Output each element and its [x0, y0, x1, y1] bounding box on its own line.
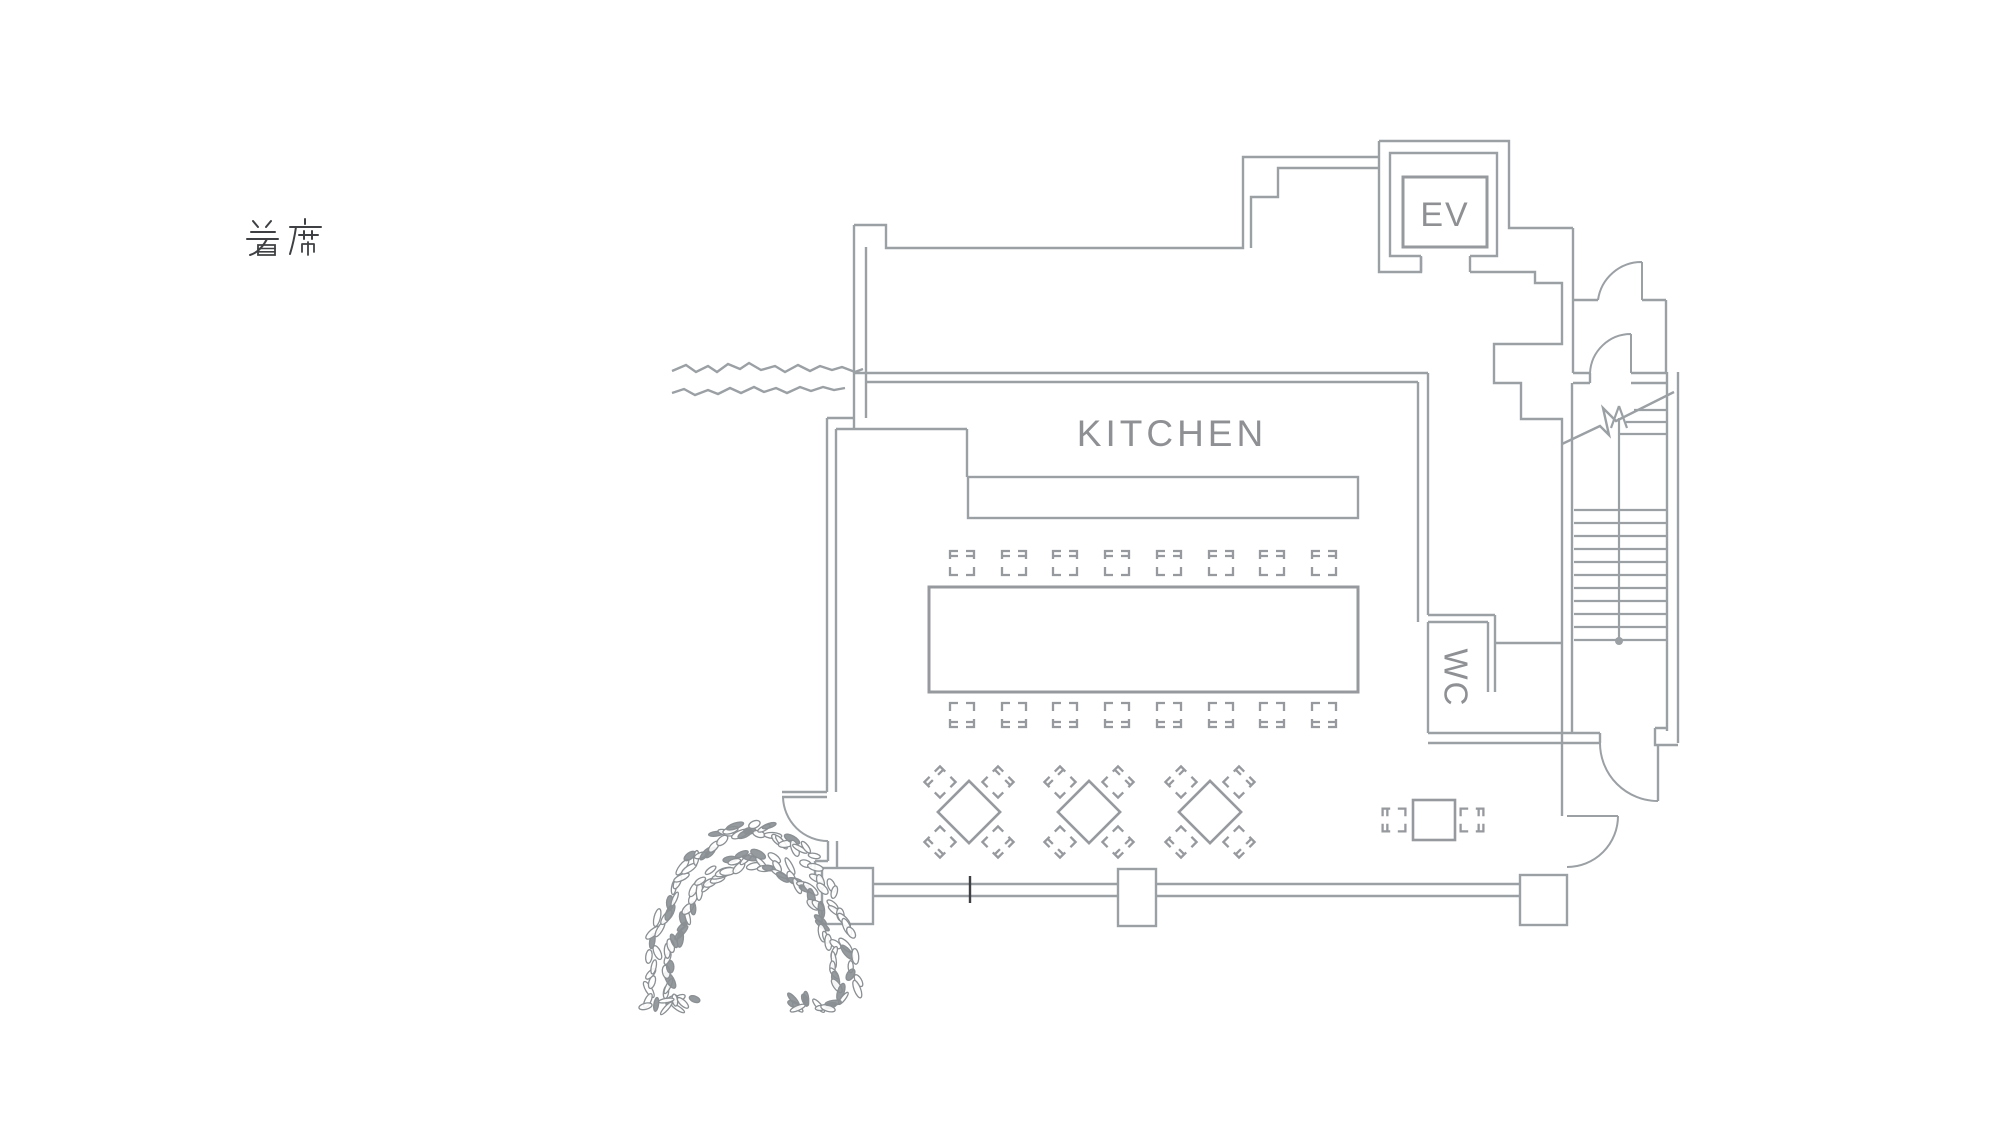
chair-outline: [1165, 766, 1196, 797]
chair: [1044, 766, 1075, 797]
staircase: [1574, 406, 1666, 645]
chair-outline: [1102, 826, 1133, 857]
door-arc: [1598, 262, 1642, 300]
chair-outline: [950, 703, 974, 727]
chair: [1157, 551, 1181, 575]
kitchen-label: KITCHEN: [1077, 413, 1267, 454]
banquet-table: [929, 587, 1358, 692]
chair: [1165, 826, 1196, 857]
structural-pillar: [1520, 875, 1567, 925]
chair-outline: [1312, 703, 1336, 727]
chair: [1383, 809, 1406, 832]
chair: [1053, 703, 1077, 727]
chair: [1209, 703, 1233, 727]
break-wall-squiggle: [672, 387, 845, 395]
leaf-icon: [845, 926, 858, 940]
chair-outline: [1002, 703, 1026, 727]
structural-pillar: [1118, 869, 1156, 926]
chair-outline: [1209, 703, 1233, 727]
chair-outline: [982, 826, 1013, 857]
break-wall-squiggle: [672, 363, 863, 372]
chair: [1223, 766, 1254, 797]
square-table: [1058, 781, 1120, 843]
chair-outline: [1312, 551, 1336, 575]
square-table: [1179, 781, 1241, 843]
chair-outline: [1044, 766, 1075, 797]
chair-outline: [1383, 809, 1406, 832]
chair: [1312, 703, 1336, 727]
chair: [924, 826, 955, 857]
chair-outline: [1044, 826, 1075, 857]
furniture: [924, 551, 1483, 858]
chair: [1157, 703, 1181, 727]
chair-outline: [1053, 551, 1077, 575]
chair: [1002, 703, 1026, 727]
floor-plan: 着席: [0, 0, 2000, 1125]
chair-outline: [950, 551, 974, 575]
door-swings: [783, 262, 1658, 867]
chair: [1102, 766, 1133, 797]
chair-outline: [1165, 826, 1196, 857]
wc-label: WC: [1437, 649, 1474, 708]
chair: [982, 766, 1013, 797]
chair: [1002, 551, 1026, 575]
chair: [1260, 703, 1284, 727]
chair: [950, 703, 974, 727]
leaf-icon: [825, 999, 842, 1006]
chair: [1260, 551, 1284, 575]
leaf-icon: [653, 997, 660, 1011]
chair: [1102, 826, 1133, 857]
chair: [1105, 551, 1129, 575]
chair-outline: [1002, 551, 1026, 575]
chair: [1165, 766, 1196, 797]
chair: [1461, 809, 1484, 832]
chair-outline: [982, 766, 1013, 797]
elevator-label: EV: [1420, 196, 1469, 234]
chair: [924, 766, 955, 797]
door-arc: [1600, 743, 1658, 801]
chair-outline: [924, 766, 955, 797]
door-arc: [1590, 334, 1631, 373]
chair: [982, 826, 1013, 857]
chair: [1312, 551, 1336, 575]
stair-start-dot: [1615, 637, 1623, 645]
kitchen-counter: [968, 477, 1358, 518]
chair-outline: [1223, 826, 1254, 857]
leaf-icon: [688, 994, 701, 1004]
chair: [1044, 826, 1075, 857]
chair: [1223, 826, 1254, 857]
chair-outline: [1157, 551, 1181, 575]
leaf-icon: [808, 852, 821, 859]
kanji-seki: [290, 219, 321, 255]
chair-outline: [1105, 551, 1129, 575]
chair: [1053, 551, 1077, 575]
seating-label: [247, 219, 321, 255]
chair-outline: [1223, 766, 1254, 797]
leaf-icon: [761, 821, 776, 830]
chair-outline: [1053, 703, 1077, 727]
chair-outline: [1157, 703, 1181, 727]
leaf-icon: [638, 1002, 653, 1011]
floor-plan-svg: KITCHEN EV WC: [0, 0, 2000, 1125]
side-table: [1413, 800, 1455, 840]
chair-outline: [924, 826, 955, 857]
leaf-icon: [807, 862, 824, 873]
chair: [1105, 703, 1129, 727]
door-arc: [1567, 816, 1618, 867]
chair-outline: [1260, 703, 1284, 727]
chair: [1209, 551, 1233, 575]
chair-outline: [1461, 809, 1484, 832]
chair-outline: [1209, 551, 1233, 575]
elevator-shaft-walls: [1379, 141, 1421, 272]
chair-outline: [1102, 766, 1133, 797]
chair: [950, 551, 974, 575]
square-table: [938, 781, 1000, 843]
structural-pillar: [822, 868, 873, 924]
chair-outline: [1260, 551, 1284, 575]
leaf-icon: [645, 949, 653, 963]
chair-outline: [1105, 703, 1129, 727]
kanji-chaku: [247, 221, 278, 255]
